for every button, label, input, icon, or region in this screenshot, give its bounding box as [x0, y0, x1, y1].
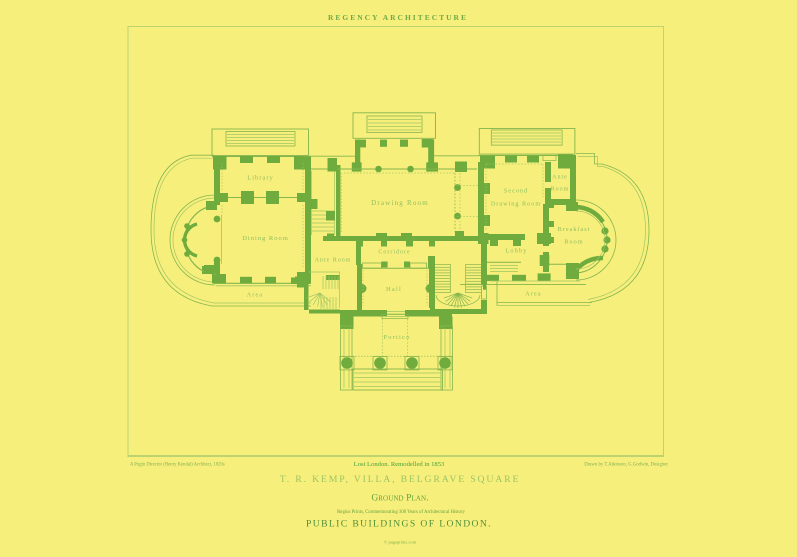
- svg-text:Portico: Portico: [383, 334, 410, 341]
- svg-text:Ground Plan.: Ground Plan.: [371, 494, 428, 504]
- svg-text:Ante: Ante: [552, 175, 568, 181]
- svg-text:Room: Room: [564, 239, 583, 246]
- svg-text:Drawing Room: Drawing Room: [371, 199, 429, 207]
- svg-text:Ante Room: Ante Room: [315, 258, 352, 264]
- svg-text:REGENCY ARCHITECTURE: REGENCY ARCHITECTURE: [328, 13, 468, 22]
- svg-text:Area: Area: [525, 292, 541, 298]
- svg-text:Room: Room: [551, 187, 570, 193]
- svg-text:Lost London. Remodelled in 185: Lost London. Remodelled in 1853: [354, 461, 445, 468]
- svg-text:Regius Prints, Commemorating 3: Regius Prints, Commemorating 300 Years o…: [337, 510, 465, 515]
- svg-text:Drawing Room: Drawing Room: [491, 201, 541, 208]
- svg-text:Second: Second: [504, 188, 528, 195]
- svg-text:Area: Area: [247, 293, 263, 299]
- svg-text:Dining Room: Dining Room: [242, 235, 289, 242]
- svg-text:Breakfast: Breakfast: [558, 226, 591, 233]
- svg-text:Library: Library: [247, 175, 274, 182]
- svg-text:A Pugin Director (Henry Kendal: A Pugin Director (Henry Kendal) Architec…: [130, 463, 225, 468]
- svg-text:Corridore: Corridore: [378, 250, 410, 256]
- svg-text:Hall: Hall: [386, 286, 402, 293]
- svg-text:© pageprints.com: © pageprints.com: [384, 540, 417, 545]
- svg-text:Lobby: Lobby: [505, 248, 527, 255]
- svg-text:Drawn by T.Atkinson, G.Godwin,: Drawn by T.Atkinson, G.Godwin, Designer: [584, 463, 668, 468]
- svg-text:PUBLIC BUILDINGS OF LONDON.: PUBLIC BUILDINGS OF LONDON.: [306, 519, 492, 530]
- svg-text:T. R. KEMP, VILLA, BELGRAVE SQ: T. R. KEMP, VILLA, BELGRAVE SQUARE: [280, 474, 521, 485]
